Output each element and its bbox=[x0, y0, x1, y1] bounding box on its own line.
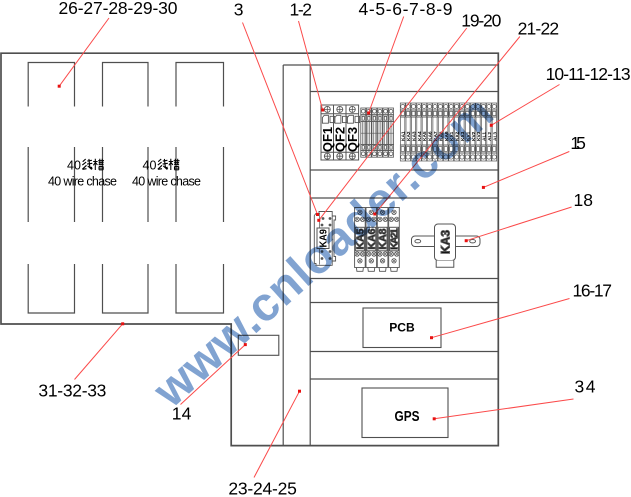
svg-text:15: 15 bbox=[570, 133, 586, 153]
svg-text:QF3: QF3 bbox=[345, 127, 360, 152]
svg-text:GPS: GPS bbox=[395, 408, 420, 425]
svg-text:KA3: KA3 bbox=[438, 230, 452, 254]
svg-text:40 wire chase: 40 wire chase bbox=[48, 175, 117, 189]
svg-text:40: 40 bbox=[143, 159, 157, 173]
svg-text:4-5-6-7-8-9: 4-5-6-7-8-9 bbox=[359, 0, 453, 19]
svg-text:1-2: 1-2 bbox=[290, 0, 313, 19]
svg-text:3: 3 bbox=[234, 0, 244, 19]
svg-text:18: 18 bbox=[574, 190, 594, 210]
svg-text:23-24-25: 23-24-25 bbox=[228, 479, 297, 497]
svg-text:40 wire chase: 40 wire chase bbox=[132, 175, 201, 189]
svg-text:PCB: PCB bbox=[389, 321, 415, 335]
svg-text:10-11-12-13: 10-11-12-13 bbox=[546, 64, 631, 84]
svg-text:40: 40 bbox=[67, 159, 81, 173]
svg-text:26-27-28-29-30: 26-27-28-29-30 bbox=[59, 0, 178, 18]
svg-text:KA21: KA21 bbox=[389, 228, 401, 250]
svg-text:31-32-33: 31-32-33 bbox=[38, 381, 106, 401]
svg-text:34: 34 bbox=[575, 377, 596, 397]
svg-text:21-22: 21-22 bbox=[518, 19, 560, 39]
svg-text:19-20: 19-20 bbox=[461, 10, 501, 30]
svg-text:16-17: 16-17 bbox=[573, 280, 613, 300]
